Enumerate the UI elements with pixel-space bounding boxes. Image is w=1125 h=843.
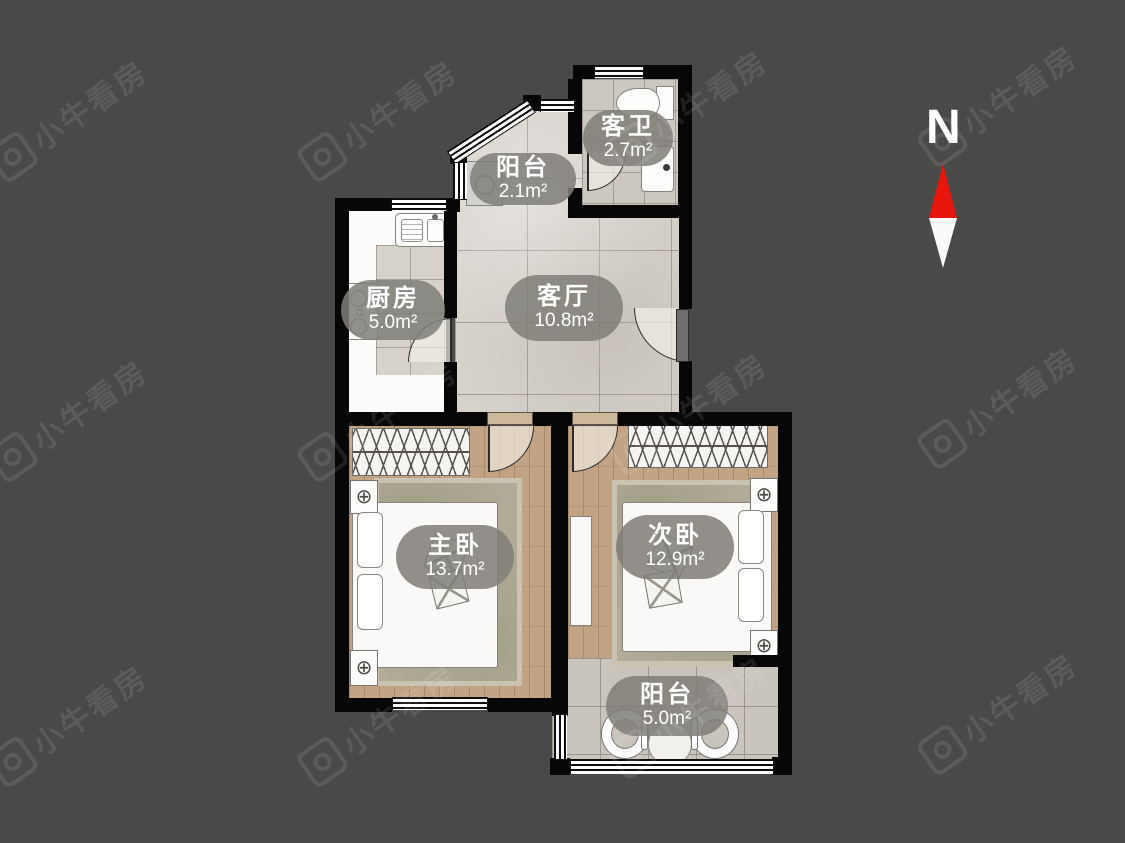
watermark-logo-icon [0, 129, 40, 185]
watermark-text: 小牛看房 [22, 48, 155, 160]
master-wardrobe [352, 428, 470, 476]
room-area: 2.7m² [604, 140, 653, 163]
second-pillow [738, 510, 764, 564]
wall-segment [618, 412, 792, 426]
wall-segment [550, 758, 570, 775]
room-label-living: 客厅 10.8m² [505, 275, 623, 341]
balcony-bottom-window [570, 759, 774, 774]
room-label-balcony-top: 阳台 2.1m² [470, 153, 576, 205]
master-window [392, 697, 488, 710]
compass-needle-north [929, 164, 957, 218]
room-label-bathroom: 客卫 2.7m² [583, 110, 673, 166]
second-speaker: ⊕ [750, 478, 778, 512]
room-name: 厨房 [366, 285, 420, 313]
wall-segment [551, 426, 568, 698]
room-name: 客厅 [537, 283, 591, 311]
room-name: 客卫 [601, 113, 655, 141]
balcony-side-window [453, 162, 467, 200]
wall-segment [335, 698, 392, 712]
watermark-text: 小牛看房 [952, 641, 1085, 753]
room-label-kitchen: 厨房 5.0m² [341, 280, 445, 340]
sink-basin-right [427, 219, 444, 242]
wall-segment [444, 209, 457, 318]
watermark-logo-icon [0, 734, 40, 790]
room-area: 2.1m² [499, 181, 548, 204]
wall-segment [444, 362, 457, 414]
watermark: 小牛看房 [294, 48, 466, 187]
faucet-dot [663, 164, 670, 171]
room-area: 13.7m² [425, 559, 484, 582]
watermark-logo-icon [295, 734, 351, 790]
compass-north-label: N [926, 100, 961, 155]
watermark: 小牛看房 [914, 641, 1086, 780]
compass-needle-south [929, 218, 957, 268]
watermark-logo-icon [915, 722, 971, 778]
kitchen-window [391, 198, 447, 211]
second-door-leaf [572, 412, 618, 425]
watermark-text: 小牛看房 [22, 348, 155, 460]
wall-segment [533, 412, 572, 426]
room-area: 5.0m² [369, 312, 418, 335]
master-door-leaf [487, 412, 533, 425]
watermark-text: 小牛看房 [22, 653, 155, 765]
wall-segment [568, 205, 692, 218]
kitchen-faucet [432, 214, 438, 220]
wall-segment [772, 757, 792, 775]
room-label-second: 次卧 12.9m² [616, 515, 734, 579]
balcony-top-window [540, 99, 575, 112]
wall-segment [573, 65, 595, 79]
watermark-text: 小牛看房 [952, 33, 1085, 145]
entry-door-leaf [676, 309, 689, 362]
wall-segment [778, 412, 792, 664]
second-wardrobe [628, 424, 768, 468]
wall-segment [335, 198, 349, 712]
second-pillow [738, 568, 764, 622]
room-area: 5.0m² [643, 708, 692, 731]
watermark: 小牛看房 [914, 335, 1086, 474]
room-area: 10.8m² [534, 310, 593, 333]
balcony-left-window [554, 714, 567, 760]
wall-segment [679, 218, 692, 309]
master-speaker: ⊕ [350, 650, 378, 686]
room-name: 主卧 [428, 532, 482, 560]
room-label-balcony-bottom: 阳台 5.0m² [606, 676, 728, 736]
wall-segment [679, 361, 692, 414]
master-pillow [357, 512, 383, 568]
watermark-logo-icon [0, 429, 40, 485]
floorplan-canvas: ⊕ ⊕ ⊕ ⊕ [0, 0, 1125, 843]
second-bedroom-cabinet [570, 516, 592, 626]
room-area: 12.9m² [645, 549, 704, 572]
watermark: 小牛看房 [0, 348, 155, 487]
watermark-logo-icon [915, 416, 971, 472]
watermark: 小牛看房 [0, 653, 155, 792]
wall-segment [568, 79, 582, 154]
wall-segment [733, 655, 778, 667]
wall-segment [335, 412, 487, 426]
room-name: 次卧 [648, 522, 702, 550]
room-label-master: 主卧 13.7m² [396, 525, 514, 589]
watermark-logo-icon [295, 129, 351, 185]
master-pillow [357, 574, 383, 630]
watermark-text: 小牛看房 [332, 48, 465, 160]
watermark-text: 小牛看房 [952, 335, 1085, 447]
bathroom-window [594, 65, 644, 78]
room-name: 阳台 [496, 154, 550, 182]
master-speaker: ⊕ [350, 480, 378, 514]
room-name: 阳台 [640, 681, 694, 709]
watermark: 小牛看房 [0, 48, 155, 187]
sink-basin-left [401, 219, 423, 242]
wall-segment [678, 65, 692, 218]
